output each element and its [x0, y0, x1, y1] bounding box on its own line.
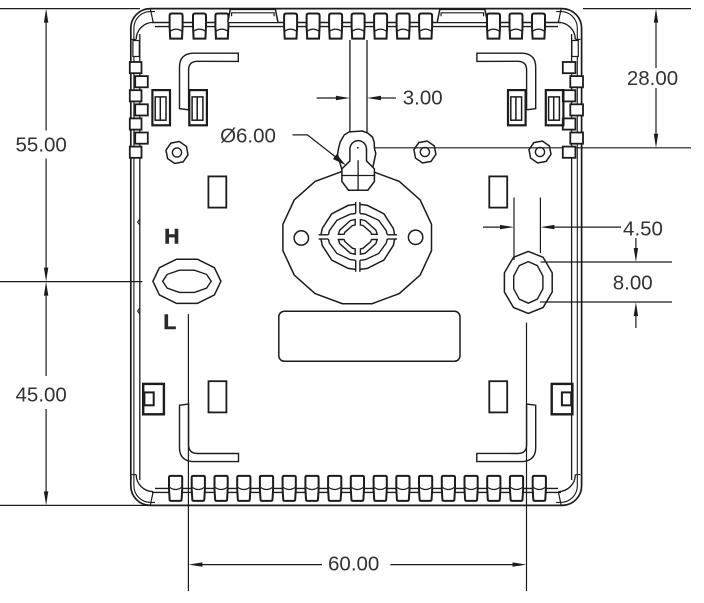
- svg-text:Ø6.00: Ø6.00: [220, 125, 276, 148]
- svg-text:60.00: 60.00: [328, 552, 379, 575]
- svg-text:55.00: 55.00: [16, 134, 67, 157]
- svg-text:8.00: 8.00: [613, 272, 653, 295]
- svg-text:L: L: [163, 311, 176, 334]
- svg-text:45.00: 45.00: [16, 383, 67, 406]
- svg-text:3.00: 3.00: [403, 87, 443, 110]
- svg-text:4.50: 4.50: [623, 218, 663, 241]
- svg-text:28.00: 28.00: [627, 67, 678, 90]
- svg-text:H: H: [164, 225, 179, 248]
